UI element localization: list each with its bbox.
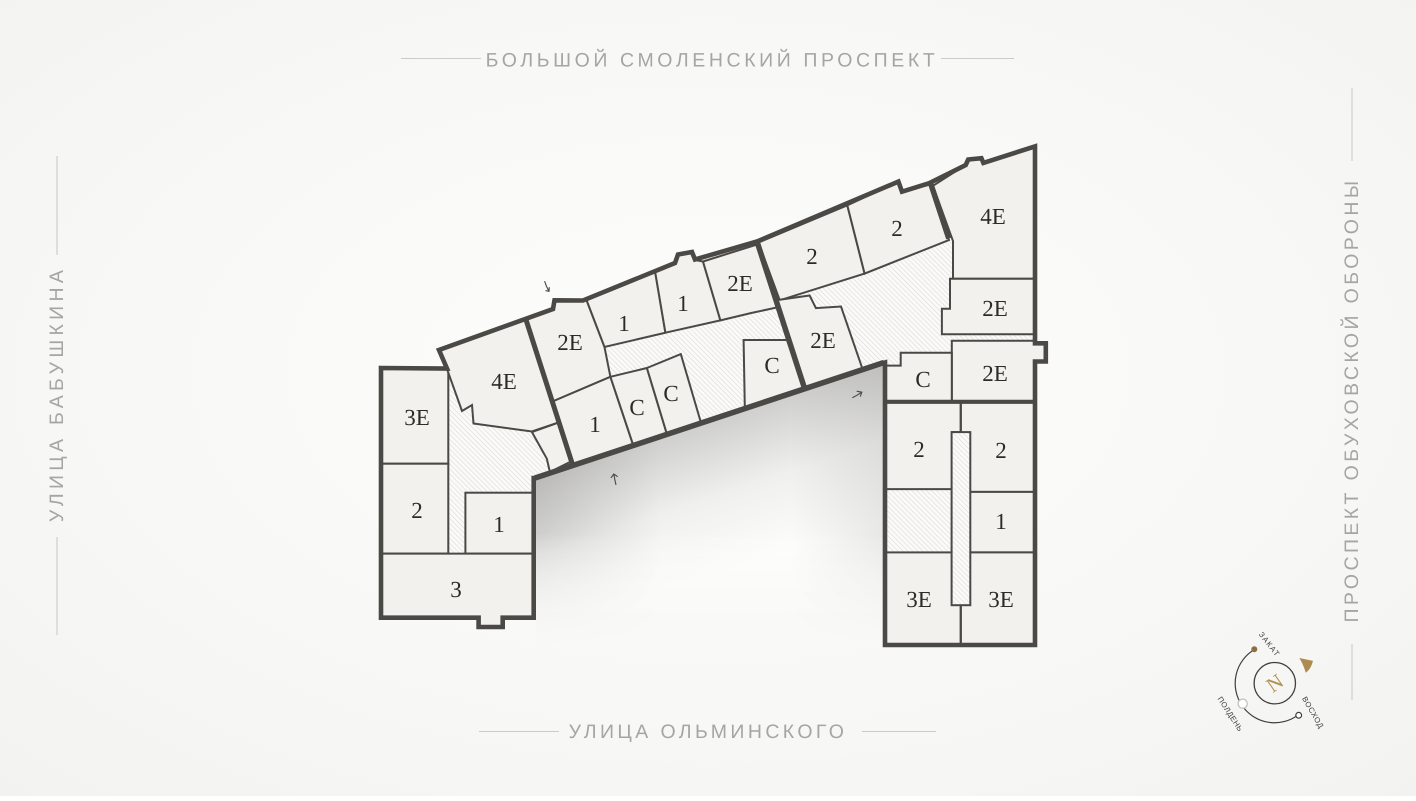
svg-text:С: С <box>629 395 644 420</box>
svg-text:1: 1 <box>589 412 601 437</box>
svg-text:2: 2 <box>891 216 903 241</box>
svg-text:2: 2 <box>411 498 423 523</box>
svg-text:2Е: 2Е <box>982 361 1008 386</box>
svg-text:С: С <box>764 353 779 378</box>
svg-text:1: 1 <box>995 509 1007 534</box>
svg-text:БОЛЬШОЙ СМОЛЕНСКИЙ ПРОСПЕКТ: БОЛЬШОЙ СМОЛЕНСКИЙ ПРОСПЕКТ <box>486 49 939 72</box>
svg-text:ПРОСПЕКТ ОБУХОВСКОЙ ОБОРОНЫ: ПРОСПЕКТ ОБУХОВСКОЙ ОБОРОНЫ <box>1340 178 1363 623</box>
svg-text:2Е: 2Е <box>810 328 836 353</box>
svg-text:С: С <box>663 381 678 406</box>
svg-text:С: С <box>915 367 930 392</box>
svg-text:УЛИЦА ОЛЬМИНСКОГО: УЛИЦА ОЛЬМИНСКОГО <box>569 721 848 743</box>
svg-text:УЛИЦА БАБУШКИНА: УЛИЦА БАБУШКИНА <box>46 266 68 522</box>
svg-text:4Е: 4Е <box>491 369 517 394</box>
svg-text:3Е: 3Е <box>404 405 430 430</box>
svg-text:1: 1 <box>618 311 630 336</box>
svg-text:2: 2 <box>995 438 1007 463</box>
svg-text:2Е: 2Е <box>982 296 1008 321</box>
svg-text:2: 2 <box>913 437 925 462</box>
svg-text:3Е: 3Е <box>906 587 932 612</box>
svg-text:1: 1 <box>493 512 505 537</box>
svg-text:3: 3 <box>450 577 462 602</box>
svg-text:4Е: 4Е <box>980 204 1006 229</box>
svg-text:1: 1 <box>677 291 689 316</box>
svg-text:2Е: 2Е <box>557 330 583 355</box>
svg-text:2Е: 2Е <box>727 271 753 296</box>
svg-text:2: 2 <box>806 244 818 269</box>
svg-text:3Е: 3Е <box>988 587 1014 612</box>
